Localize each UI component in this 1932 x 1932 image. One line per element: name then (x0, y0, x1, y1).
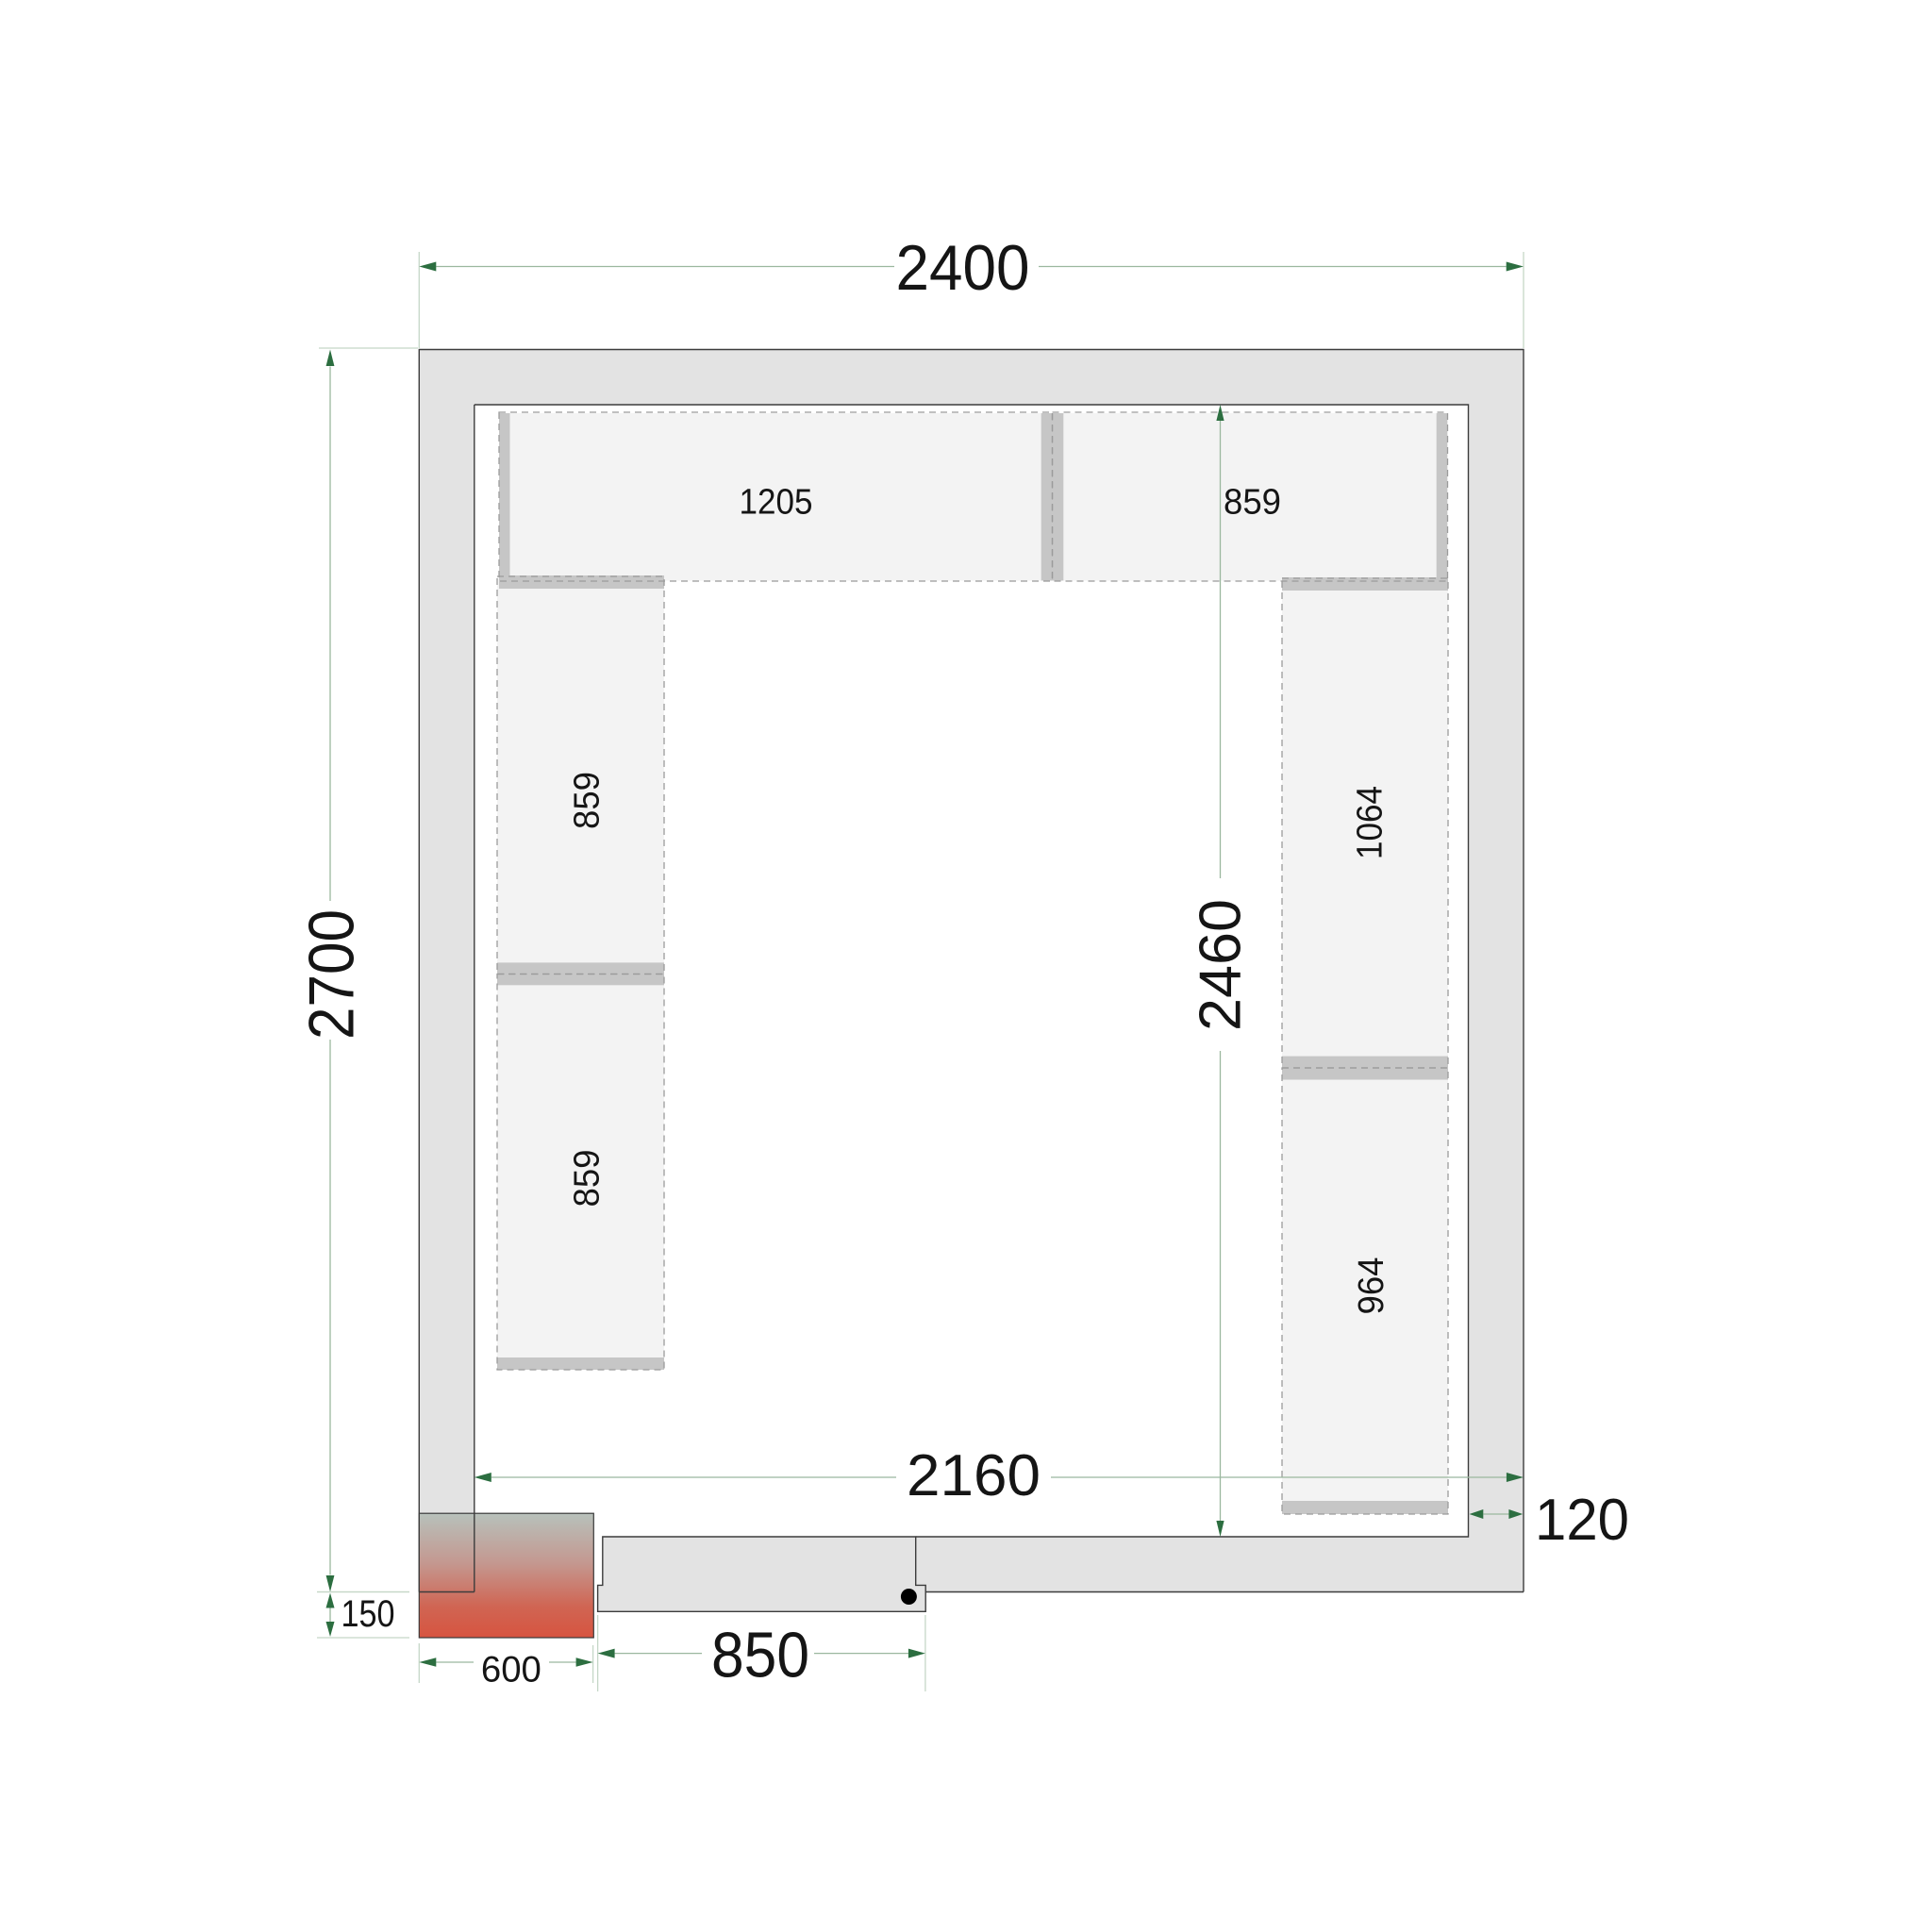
svg-text:120: 120 (1535, 1488, 1629, 1553)
svg-text:2160: 2160 (907, 1443, 1041, 1508)
svg-text:964: 964 (1352, 1257, 1391, 1315)
svg-text:2700: 2700 (295, 909, 367, 1040)
svg-text:859: 859 (568, 1150, 608, 1207)
svg-text:859: 859 (568, 772, 608, 829)
svg-text:859: 859 (1224, 483, 1281, 523)
svg-text:850: 850 (711, 1619, 809, 1690)
svg-text:1064: 1064 (1351, 786, 1391, 859)
svg-text:600: 600 (481, 1649, 541, 1690)
svg-text:2400: 2400 (896, 232, 1030, 304)
svg-text:150: 150 (341, 1593, 395, 1635)
svg-text:1205: 1205 (740, 483, 813, 523)
svg-text:2460: 2460 (1189, 899, 1254, 1031)
